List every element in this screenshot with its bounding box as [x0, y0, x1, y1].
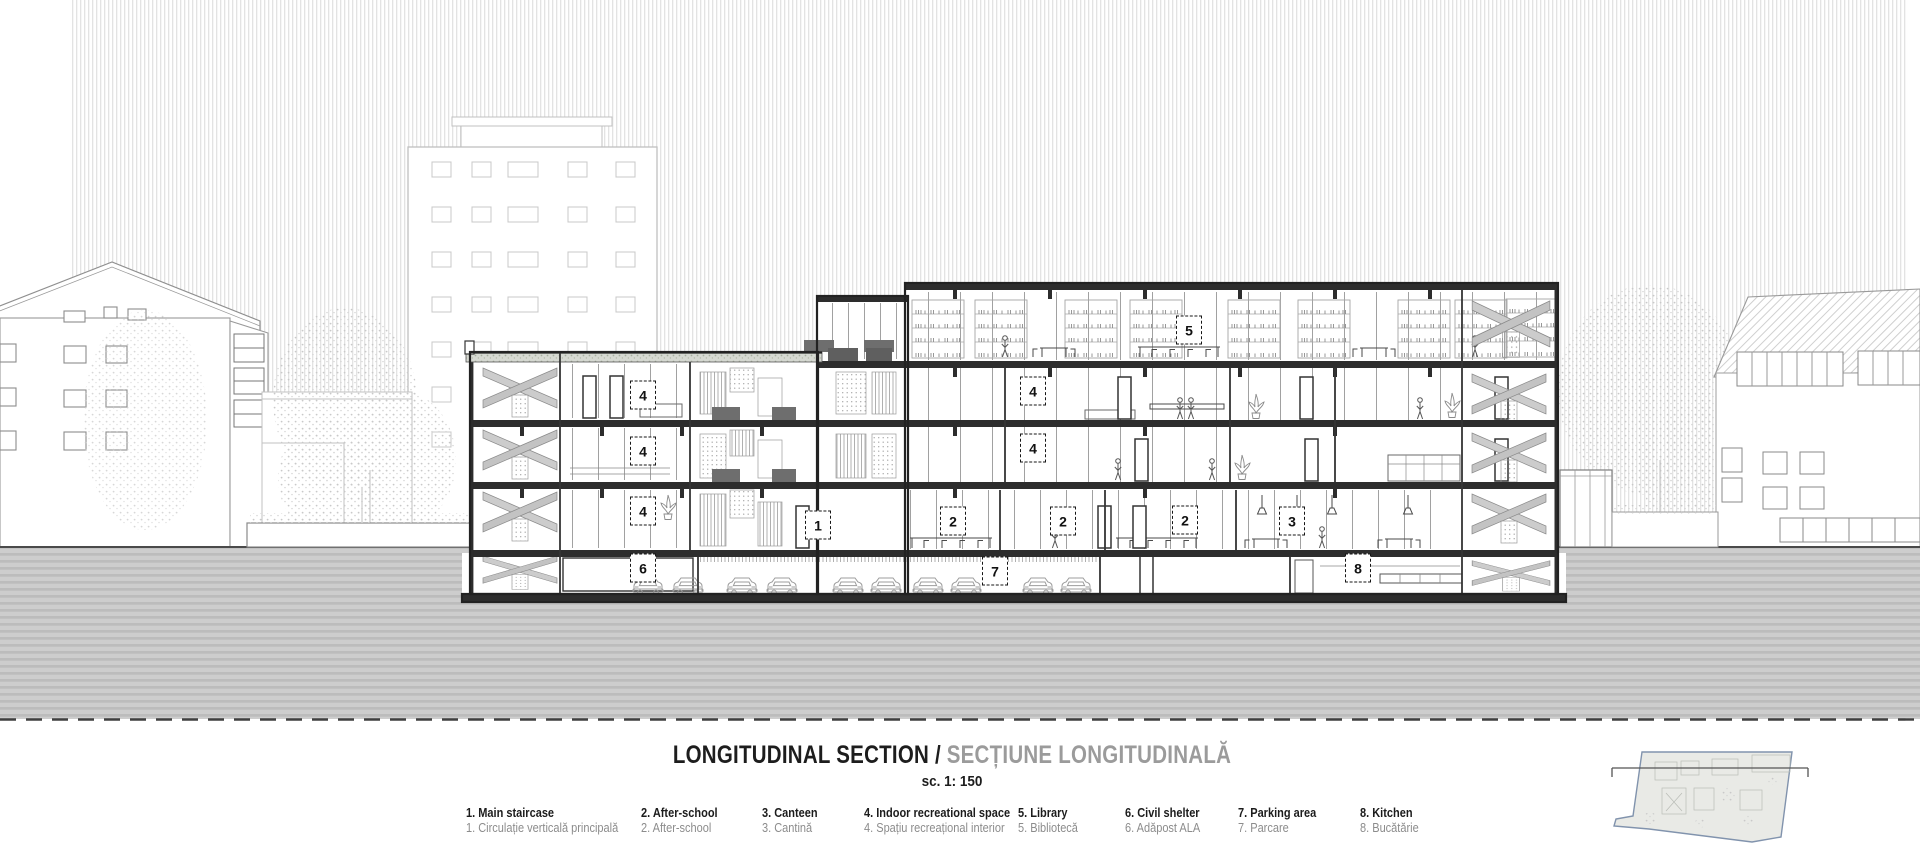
legend-item-romanian: 2. After-school: [641, 821, 718, 836]
legend-item-english: 8. Kitchen: [1360, 806, 1419, 821]
legend-item: 4. Indoor recreational space 4. Spațiu r…: [864, 806, 1010, 836]
legend-item-romanian: 8. Bucătărie: [1360, 821, 1419, 836]
legend-item: 1. Main staircase 1. Circulație vertical…: [466, 806, 618, 836]
legend-item-english: 1. Main staircase: [466, 806, 618, 821]
legend-item: 5. Library 5. Bibliotecă: [1018, 806, 1078, 836]
legend-item-romanian: 3. Cantină: [762, 821, 818, 836]
title-block: LONGITUDINAL SECTION /SECȚIUNE LONGITUDI…: [612, 741, 1293, 790]
drawing-scale: sc. 1: 150: [646, 773, 1259, 790]
legend-item: 8. Kitchen 8. Bucătărie: [1360, 806, 1419, 836]
legend-item: 3. Canteen 3. Cantină: [762, 806, 818, 836]
legend-item-romanian: 1. Circulație verticală principală: [466, 821, 618, 836]
legend-item-english: 5. Library: [1018, 806, 1078, 821]
title-romanian: SECȚIUNE LONGITUDINALĂ: [947, 741, 1231, 769]
legend-item-english: 4. Indoor recreational space: [864, 806, 1010, 821]
legend-item-english: 2. After-school: [641, 806, 718, 821]
legend-item: 7. Parking area 7. Parcare: [1238, 806, 1316, 836]
legend-item-english: 7. Parking area: [1238, 806, 1316, 821]
legend-item-english: 3. Canteen: [762, 806, 818, 821]
legend-item-english: 6. Civil shelter: [1125, 806, 1200, 821]
legend-item-romanian: 5. Bibliotecă: [1018, 821, 1078, 836]
right-house: [1714, 289, 1920, 547]
architectural-sheet: 5 4 4 4 4 4 1 2 2 2 3 6 7 8 LONGITUDINAL…: [0, 0, 1920, 864]
legend: 1. Main staircase 1. Circulație vertical…: [0, 806, 1920, 850]
legend-item-romanian: 6. Adăpost ALA: [1125, 821, 1200, 836]
title-english: LONGITUDINAL SECTION /: [673, 741, 941, 769]
legend-item: 6. Civil shelter 6. Adăpost ALA: [1125, 806, 1200, 836]
drawing-title: LONGITUDINAL SECTION /SECȚIUNE LONGITUDI…: [673, 741, 1231, 770]
legend-item: 2. After-school 2. After-school: [641, 806, 718, 836]
section-drawing: [0, 0, 1920, 864]
legend-item-romanian: 7. Parcare: [1238, 821, 1316, 836]
legend-item-romanian: 4. Spațiu recreațional interior: [864, 821, 1010, 836]
